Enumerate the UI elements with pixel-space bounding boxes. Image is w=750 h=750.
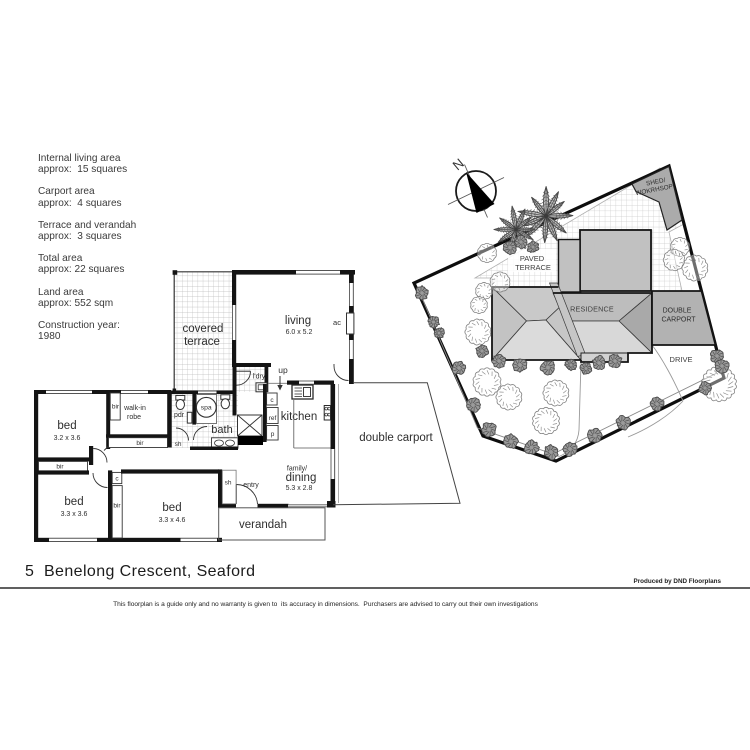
svg-text:entry: entry — [243, 482, 259, 489]
svg-text:covered: covered — [183, 323, 224, 335]
svg-text:sh: sh — [175, 441, 182, 448]
svg-text:ac: ac — [333, 318, 341, 327]
svg-text:p: p — [271, 431, 275, 438]
svg-text:3.3 x 4.6: 3.3 x 4.6 — [159, 517, 186, 524]
svg-text:TERRACE: TERRACE — [515, 263, 551, 272]
svg-text:pdr: pdr — [174, 412, 185, 419]
svg-text:kitchen: kitchen — [281, 411, 317, 423]
svg-text:l'dry: l'dry — [253, 374, 266, 381]
svg-text:robe: robe — [127, 414, 141, 421]
svg-text:living: living — [285, 315, 311, 327]
svg-text:CARPORT: CARPORT — [661, 317, 696, 324]
svg-text:terrace: terrace — [184, 336, 220, 348]
svg-text:bir: bir — [113, 503, 121, 510]
svg-text:6.0 x 5.2: 6.0 x 5.2 — [286, 329, 313, 336]
svg-text:verandah: verandah — [239, 519, 287, 531]
svg-text:N: N — [450, 156, 467, 174]
svg-text:bed: bed — [162, 502, 181, 514]
svg-text:spa: spa — [201, 404, 212, 411]
svg-text:5.3 x 2.8: 5.3 x 2.8 — [286, 485, 313, 492]
svg-text:bath: bath — [211, 424, 232, 436]
svg-text:PAVED: PAVED — [520, 254, 545, 263]
svg-text:dining: dining — [286, 472, 317, 484]
svg-text:up: up — [278, 365, 288, 375]
svg-text:3.2 x 3.6: 3.2 x 3.6 — [54, 435, 81, 442]
svg-text:DOUBLE: DOUBLE — [663, 308, 692, 315]
svg-text:walk-in: walk-in — [123, 405, 146, 412]
svg-text:bed: bed — [57, 420, 76, 432]
svg-text:bir: bir — [136, 440, 144, 447]
svg-text:bed: bed — [64, 496, 83, 508]
svg-text:sh: sh — [225, 480, 232, 487]
svg-text:bir: bir — [56, 464, 64, 471]
svg-text:DRIVE: DRIVE — [670, 355, 693, 364]
svg-text:ref: ref — [269, 415, 277, 422]
svg-text:bir: bir — [112, 404, 120, 411]
svg-text:3.3 x 3.6: 3.3 x 3.6 — [61, 511, 88, 518]
svg-text:RESIDENCE: RESIDENCE — [570, 305, 614, 314]
svg-text:double carport: double carport — [359, 432, 433, 444]
